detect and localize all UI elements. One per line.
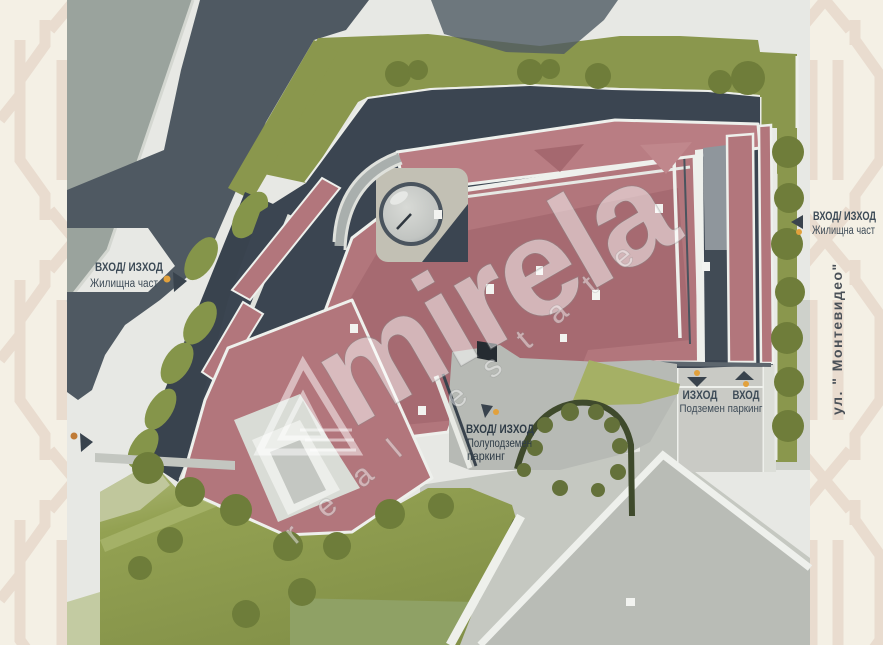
svg-text:ВХОД/ ИЗХОД: ВХОД/ ИЗХОД — [813, 209, 876, 223]
svg-text:паркинг: паркинг — [467, 451, 505, 463]
svg-text:Жилищна част: Жилищна част — [90, 278, 159, 290]
svg-text:ИЗХОД: ИЗХОД — [683, 390, 718, 402]
svg-text:Жилищна част: Жилищна част — [812, 225, 876, 237]
svg-text:ВХОД/ ИЗХОД: ВХОД/ ИЗХОД — [95, 260, 163, 274]
svg-text:Полуподземен: Полуподземен — [467, 438, 532, 450]
svg-text:ВХОД/ ИЗХОД: ВХОД/ ИЗХОД — [466, 422, 534, 436]
svg-text:Подземен паркинг: Подземен паркинг — [680, 403, 763, 415]
svg-text:ул. " Монтевидео": ул. " Монтевидео" — [829, 262, 845, 415]
svg-text:ВХОД: ВХОД — [733, 390, 760, 402]
